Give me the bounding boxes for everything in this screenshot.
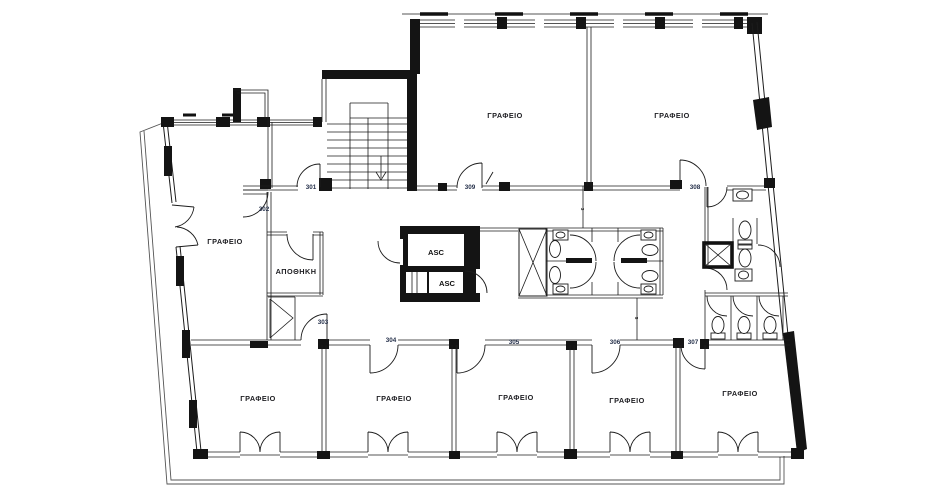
- column: [734, 17, 743, 29]
- privacy-screen: [621, 258, 647, 263]
- column: [260, 179, 271, 189]
- left-exterior-wall: [163, 121, 201, 452]
- toilet: [739, 221, 751, 239]
- left-wall-pier: [189, 400, 197, 428]
- balcony-double-door: [718, 432, 758, 452]
- left-wall-pier: [182, 330, 190, 358]
- toilet: [738, 317, 750, 334]
- elevator-door-gap-left: [398, 239, 403, 265]
- storage-door-arc: [287, 234, 313, 260]
- column: [193, 449, 208, 459]
- toilet: [712, 317, 724, 334]
- toilet: [642, 245, 658, 256]
- stair-wall-right: [407, 70, 417, 191]
- balcony-double-door: [368, 432, 408, 452]
- privacy-screen: [566, 258, 592, 263]
- door-number-302: 302: [259, 206, 270, 213]
- storage-room: [267, 192, 323, 340]
- room-label-office-302: ΓΡΑΦΕΙΟ: [207, 237, 243, 246]
- sink-basin: [739, 271, 749, 279]
- door-302-jamb: [243, 190, 268, 194]
- door-308-arc: [680, 160, 706, 186]
- duct-shaft: [480, 228, 547, 296]
- column: [449, 339, 459, 349]
- toilet: [739, 249, 751, 267]
- room-label-office-bottom-4: ΓΡΑΦΕΙΟ: [609, 396, 645, 405]
- stairwell: [319, 70, 417, 191]
- bottom-exterior-wall: [193, 432, 804, 459]
- nook-wall: [480, 228, 518, 231]
- central-toilet-core: [518, 228, 663, 298]
- site-boundary: [140, 123, 784, 484]
- elevator-label-1: ASC: [428, 248, 445, 257]
- column: [564, 449, 577, 459]
- column: [318, 339, 329, 349]
- column: [216, 117, 230, 127]
- elevator-counterweight-cell: [406, 272, 427, 293]
- balcony-double-door: [610, 432, 650, 452]
- office-309-308-divider: [587, 27, 591, 186]
- vestibule-west-wall: [268, 122, 272, 188]
- ramp-hatch: [268, 297, 295, 340]
- door-number-306: 306: [610, 339, 621, 346]
- room-label-office-309: ΓΡΑΦΕΙΟ: [487, 111, 523, 120]
- sink-basin: [556, 286, 565, 292]
- labels: ΓΡΑΦΕΙΟ ΓΡΑΦΕΙΟ ΓΡΑΦΕΙΟ ΓΡΑΦΕΙΟ ΓΡΑΦΕΙΟ …: [207, 111, 758, 405]
- outer-boundary-line: [140, 123, 784, 484]
- right-wall-thick: [783, 331, 807, 453]
- sink-basin: [556, 232, 565, 238]
- window-gap: [535, 16, 544, 29]
- column: [317, 451, 330, 459]
- stair-down-arrow: [376, 156, 386, 180]
- toilet-tank: [738, 240, 752, 244]
- column: [584, 182, 593, 191]
- door-303-arc: [301, 314, 327, 340]
- restroom-inner-door: [707, 268, 727, 290]
- column: [576, 17, 586, 29]
- door-302-arc: [243, 192, 268, 217]
- elevator-label-2: ASC: [439, 279, 456, 288]
- column: [449, 451, 460, 459]
- column: [791, 448, 804, 459]
- door-number-301: 301: [306, 184, 317, 191]
- left-wall-pier: [176, 256, 184, 286]
- door-306-arc: [592, 345, 620, 373]
- room-label-office-bottom-2: ΓΡΑΦΕΙΟ: [376, 394, 412, 403]
- column: [438, 183, 447, 191]
- vestibule-301: [260, 122, 320, 189]
- toilet: [550, 267, 561, 284]
- stair-wall-left: [322, 79, 326, 122]
- top-left-wall-lines: [163, 120, 322, 125]
- top-window-band: [410, 16, 762, 74]
- partition-mark-2: 5: [634, 317, 639, 320]
- room-label-storage: ΑΠΟΘΗΚΗ: [276, 267, 317, 276]
- partition-mark-1: 3: [580, 208, 585, 211]
- toilet: [642, 271, 658, 282]
- sink-basin: [644, 286, 653, 292]
- column: [670, 180, 682, 189]
- restroom-entry-door-arc: [707, 187, 727, 207]
- top-left-wall: [161, 88, 322, 127]
- bottom-wall-lines: [196, 452, 799, 457]
- room-label-office-bottom-3: ΓΡΑΦΕΙΟ: [498, 393, 534, 402]
- toilet: [550, 241, 561, 258]
- door-number-304: 304: [386, 337, 397, 344]
- column: [313, 117, 322, 127]
- lower-corridor-wall: [191, 314, 790, 373]
- column: [319, 178, 332, 191]
- left-double-door: [172, 205, 198, 247]
- sink-basin: [737, 191, 749, 199]
- stair-treads: [327, 124, 407, 188]
- door-305-arc: [457, 345, 485, 373]
- floor-plan-drawing: ΓΡΑΦΕΙΟ ΓΡΑΦΕΙΟ ΓΡΑΦΕΙΟ ΓΡΑΦΕΙΟ ΓΡΑΦΕΙΟ …: [0, 0, 927, 493]
- toilet-tank: [738, 245, 752, 249]
- room-label-office-bottom-1: ΓΡΑΦΕΙΟ: [240, 394, 276, 403]
- door-number-305: 305: [509, 339, 520, 346]
- outer-boundary-line-inner: [144, 131, 780, 480]
- elevator-core: [378, 226, 487, 302]
- stall-doors: [707, 296, 779, 316]
- column: [410, 19, 420, 74]
- column: [161, 117, 174, 127]
- window-gap: [455, 16, 464, 29]
- sink-basin: [644, 232, 653, 238]
- wc-niche-door: [758, 245, 780, 267]
- right-wall-pier: [753, 97, 772, 130]
- door-number-303: 303: [318, 319, 329, 326]
- column: [499, 182, 510, 191]
- left-wall-pier: [164, 146, 172, 176]
- balcony-double-door: [240, 432, 280, 452]
- wall-chunk: [250, 341, 268, 348]
- room-label-office-bottom-5: ΓΡΑΦΕΙΟ: [722, 389, 758, 398]
- elevator-door-arc-left: [378, 241, 400, 263]
- door-304-arc: [370, 345, 398, 373]
- corner-column: [747, 17, 762, 34]
- window-gap: [693, 16, 702, 29]
- elevator-door-gap-right: [476, 269, 481, 293]
- door-number-307: 307: [688, 339, 699, 346]
- column: [700, 339, 709, 349]
- column: [673, 338, 684, 348]
- floor-plan-page: ΓΡΑΦΕΙΟ ΓΡΑΦΕΙΟ ΓΡΑΦΕΙΟ ΓΡΑΦΕΙΟ ΓΡΑΦΕΙΟ …: [0, 0, 927, 493]
- door-number-308: 308: [690, 184, 701, 191]
- roof-overhang-lines: [183, 14, 768, 115]
- balcony-double-door: [497, 432, 537, 452]
- right-wall-pier: [764, 178, 775, 188]
- column: [566, 341, 577, 350]
- toilet: [764, 317, 776, 334]
- column: [655, 17, 665, 29]
- stair-wall-top: [322, 70, 416, 79]
- door-number-309: 309: [465, 184, 476, 191]
- room-label-office-308: ΓΡΑΦΕΙΟ: [654, 111, 690, 120]
- right-exterior-wall: [752, 22, 807, 453]
- window-gap: [614, 16, 623, 29]
- duct-shaft-x: [519, 229, 547, 296]
- column: [497, 17, 507, 29]
- column: [671, 451, 683, 459]
